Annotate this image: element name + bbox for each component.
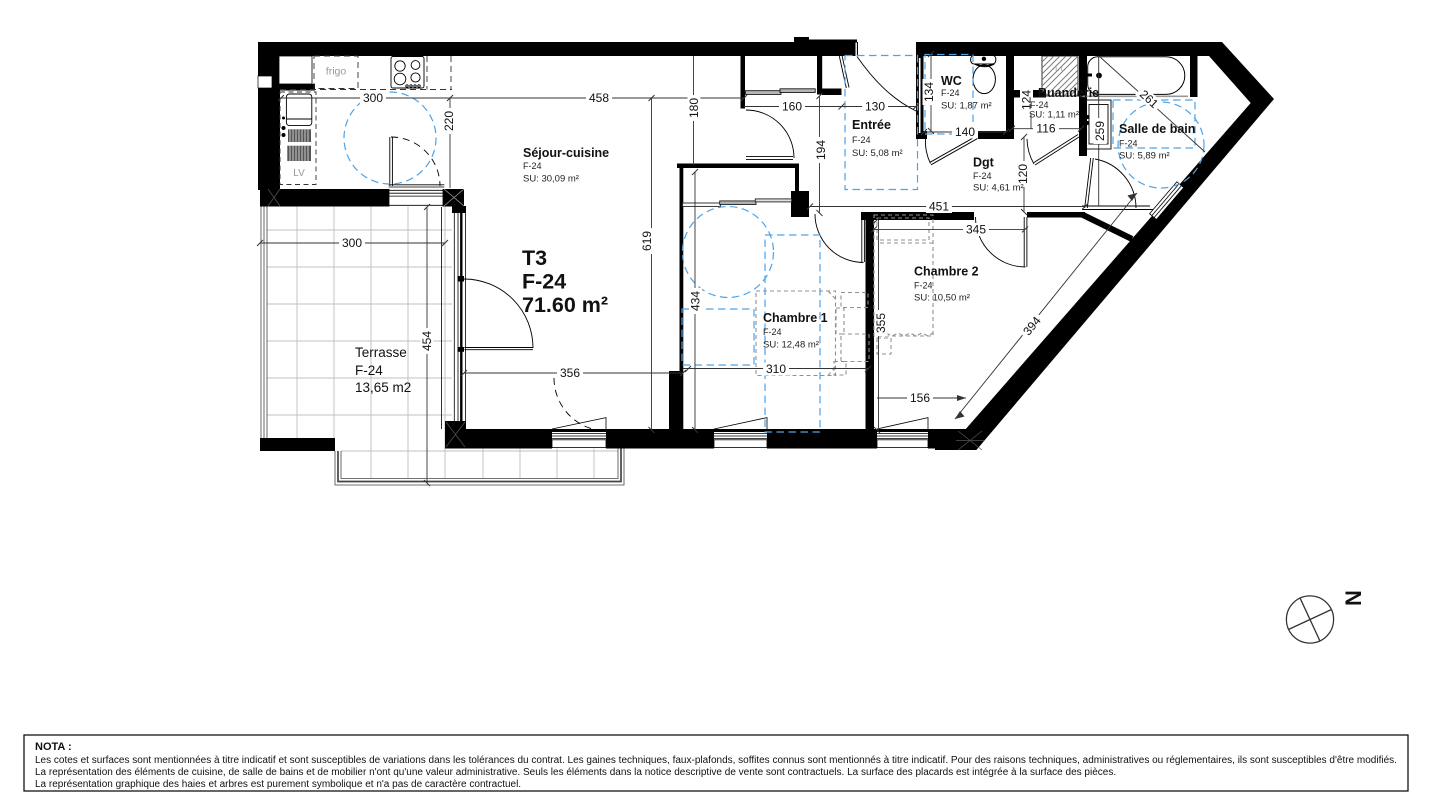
svg-text:SU: 4,61 m²: SU: 4,61 m² — [973, 183, 1024, 194]
svg-text:Chambre 1: Chambre 1 — [763, 311, 828, 325]
svg-text:SU: 30,09 m²: SU: 30,09 m² — [523, 174, 579, 185]
svg-text:71.60 m²: 71.60 m² — [522, 293, 608, 317]
svg-text:SU: 1,11 m²: SU: 1,11 m² — [1029, 110, 1079, 121]
svg-text:300: 300 — [342, 236, 362, 250]
svg-text:F-24: F-24 — [973, 171, 992, 181]
svg-text:120: 120 — [1016, 164, 1030, 184]
svg-text:N: N — [1341, 590, 1366, 606]
svg-text:194: 194 — [814, 140, 828, 160]
svg-text:F-24: F-24 — [852, 135, 871, 145]
svg-text:F-24: F-24 — [355, 363, 383, 378]
svg-text:SU: 1,87 m²: SU: 1,87 m² — [941, 101, 992, 112]
svg-text:SU: 12,48 m²: SU: 12,48 m² — [763, 340, 819, 351]
svg-text:355: 355 — [874, 313, 888, 333]
svg-text:310: 310 — [766, 362, 786, 376]
svg-text:SU: 10,50 m²: SU: 10,50 m² — [914, 293, 970, 304]
svg-text:F-24: F-24 — [941, 88, 960, 98]
svg-text:156: 156 — [910, 391, 930, 405]
svg-text:F-24: F-24 — [1119, 139, 1138, 149]
svg-text:160: 160 — [782, 100, 802, 114]
svg-text:259: 259 — [1093, 121, 1107, 141]
svg-text:Chambre 2: Chambre 2 — [914, 265, 979, 279]
svg-text:Salle de bain: Salle de bain — [1119, 122, 1195, 136]
svg-text:Dgt: Dgt — [973, 156, 995, 170]
svg-text:SU: 5,89 m²: SU: 5,89 m² — [1119, 151, 1170, 162]
svg-text:Séjour-cuisine: Séjour-cuisine — [523, 146, 609, 160]
svg-text:Terrasse: Terrasse — [355, 345, 407, 360]
svg-text:454: 454 — [420, 331, 434, 351]
svg-text:F-24: F-24 — [763, 327, 782, 337]
svg-text:LV: LV — [293, 168, 305, 179]
svg-text:SU: 5,08 m²: SU: 5,08 m² — [852, 148, 903, 159]
svg-text:F-24: F-24 — [522, 270, 566, 294]
svg-text:La représentation des éléments: La représentation des éléments de cuisin… — [35, 767, 1116, 778]
svg-text:13,65 m2: 13,65 m2 — [355, 380, 411, 395]
svg-text:116: 116 — [1036, 122, 1055, 136]
svg-text:458: 458 — [589, 91, 609, 105]
svg-text:F-24: F-24 — [1030, 100, 1049, 110]
svg-text:Entrée: Entrée — [852, 118, 891, 132]
svg-text:451: 451 — [929, 200, 949, 214]
svg-text:180: 180 — [687, 98, 701, 118]
svg-text:F-24: F-24 — [523, 161, 542, 171]
svg-text:T3: T3 — [522, 246, 547, 270]
svg-text:356: 356 — [560, 366, 580, 380]
svg-text:140: 140 — [955, 125, 975, 139]
svg-text:La représentation graphique de: La représentation graphique des haies et… — [35, 779, 521, 790]
svg-text:345: 345 — [966, 223, 986, 237]
svg-text:frigo: frigo — [326, 66, 347, 78]
svg-text:Les cotes et surfaces sont men: Les cotes et surfaces sont mentionnées à… — [35, 755, 1397, 766]
svg-text:WC: WC — [941, 74, 962, 88]
svg-text:434: 434 — [689, 291, 703, 311]
svg-text:134: 134 — [922, 82, 936, 102]
svg-text:220: 220 — [442, 111, 456, 131]
svg-text:F-24: F-24 — [914, 281, 933, 291]
svg-text:L L: L L — [1055, 66, 1065, 73]
svg-text:300: 300 — [363, 91, 383, 105]
svg-text:NOTA :: NOTA : — [35, 741, 72, 753]
svg-text:Buanderie: Buanderie — [1038, 86, 1099, 100]
svg-text:130: 130 — [865, 100, 885, 114]
svg-text:619: 619 — [640, 231, 654, 251]
